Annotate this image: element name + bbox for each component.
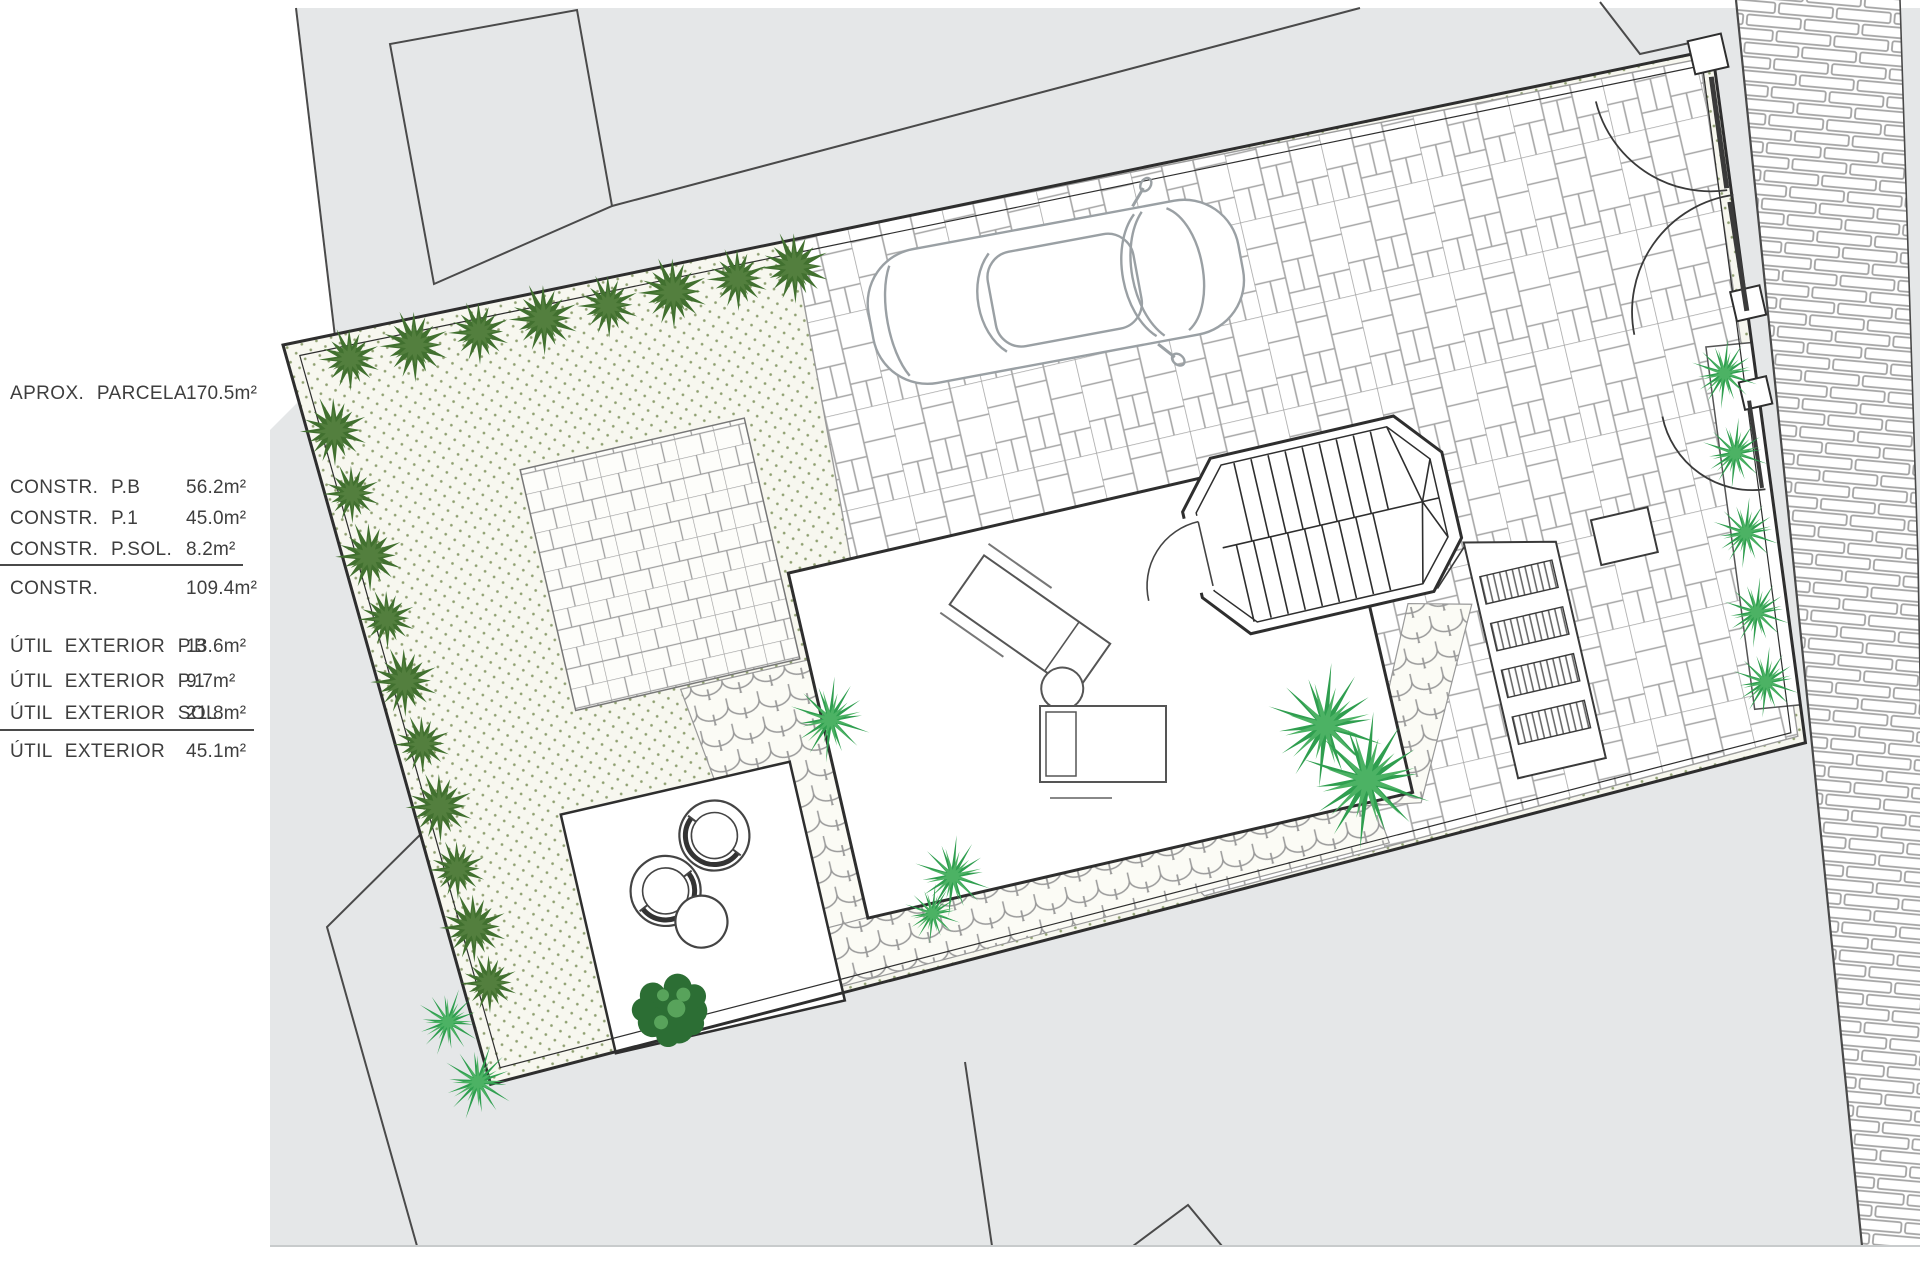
gate-post [1688, 34, 1729, 75]
area-label: ÚTIL EXTERIOR P.1 [10, 671, 205, 693]
site-plan-svg [0, 0, 1920, 1280]
area-label: ÚTIL EXTERIOR [10, 741, 165, 763]
area-value: 21.8m² [186, 703, 246, 725]
area-label: CONSTR. P.1 [10, 508, 138, 530]
legend-divider [0, 564, 243, 566]
area-value: 13.6m² [186, 636, 246, 658]
area-label: CONSTR. P.SOL. [10, 539, 172, 561]
area-value: 109.4m² [186, 578, 257, 600]
legend-divider [0, 729, 254, 731]
area-label: APROX. PARCELA [10, 383, 187, 405]
area-value: 9.7m² [186, 671, 236, 693]
area-value: 56.2m² [186, 477, 246, 499]
area-label: ÚTIL EXTERIOR P.B [10, 636, 207, 658]
area-value: 8.2m² [186, 539, 236, 561]
gate-post [1739, 376, 1773, 410]
site-plan-document: APROX. PARCELA 170.5m² CONSTR. P.B 56.2m… [0, 0, 1920, 1280]
area-label: CONSTR. [10, 578, 98, 600]
area-value: 45.1m² [186, 741, 246, 763]
area-label: CONSTR. P.B [10, 477, 140, 499]
areas-legend: APROX. PARCELA 170.5m² CONSTR. P.B 56.2m… [0, 0, 270, 1280]
area-value: 170.5m² [186, 383, 257, 405]
area-value: 45.0m² [186, 508, 246, 530]
